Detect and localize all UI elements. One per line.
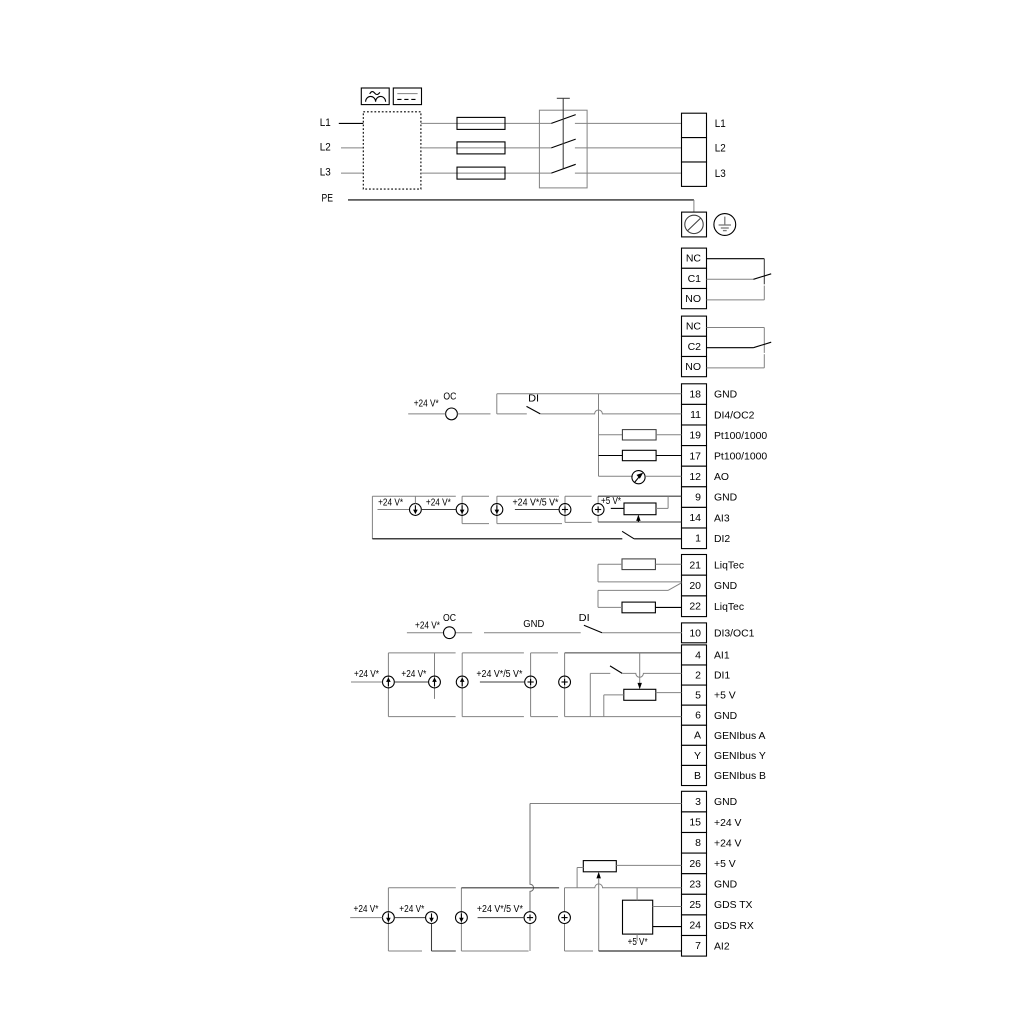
svg-text:L2: L2 <box>715 143 726 155</box>
svg-text:8: 8 <box>695 837 701 849</box>
svg-text:3: 3 <box>695 796 701 808</box>
svg-text:AI1: AI1 <box>714 651 730 662</box>
svg-text:20: 20 <box>689 580 701 592</box>
svg-text:C1: C1 <box>688 273 702 285</box>
svg-text:L3: L3 <box>715 168 726 180</box>
svg-text:GND: GND <box>714 711 737 722</box>
svg-text:+24 V*: +24 V* <box>354 669 379 680</box>
svg-text:GND: GND <box>714 390 737 401</box>
svg-text:+24 V: +24 V <box>714 818 742 829</box>
svg-text:22: 22 <box>689 601 701 613</box>
svg-text:24: 24 <box>689 920 701 932</box>
svg-text:B: B <box>694 770 701 782</box>
svg-text:AI3: AI3 <box>714 513 730 524</box>
svg-text:9: 9 <box>695 492 701 504</box>
svg-text:+5 V*: +5 V* <box>628 937 648 948</box>
svg-text:+24 V: +24 V <box>714 838 742 849</box>
svg-text:6: 6 <box>695 710 701 722</box>
svg-text:+24 V*/5 V*: +24 V*/5 V* <box>477 904 523 915</box>
svg-text:DI: DI <box>579 613 590 624</box>
svg-text:23: 23 <box>689 878 701 890</box>
svg-text:C2: C2 <box>688 341 702 353</box>
svg-text:L1: L1 <box>320 117 331 129</box>
svg-text:AI2: AI2 <box>714 941 730 952</box>
svg-text:11: 11 <box>690 409 701 421</box>
svg-text:LiqTec: LiqTec <box>714 602 744 613</box>
svg-text:14: 14 <box>689 512 701 524</box>
svg-text:GND: GND <box>523 619 544 630</box>
svg-text:2: 2 <box>695 669 701 681</box>
svg-text:+24 V*: +24 V* <box>399 904 424 915</box>
svg-text:PE: PE <box>322 193 334 205</box>
svg-text:+5 V: +5 V <box>714 859 736 870</box>
svg-text:Y: Y <box>694 750 701 762</box>
svg-text:15: 15 <box>689 817 701 829</box>
svg-text:4: 4 <box>695 649 701 661</box>
svg-text:GND: GND <box>714 493 737 504</box>
svg-text:10: 10 <box>689 627 701 639</box>
svg-text:GND: GND <box>714 880 737 891</box>
svg-text:17: 17 <box>689 450 701 462</box>
svg-text:+24 V*: +24 V* <box>354 904 379 915</box>
svg-text:NO: NO <box>685 361 701 373</box>
svg-text:L1: L1 <box>715 118 726 130</box>
svg-text:+24 V*: +24 V* <box>401 669 426 680</box>
svg-text:Pt100/1000: Pt100/1000 <box>714 431 767 442</box>
svg-text:7: 7 <box>695 940 701 952</box>
svg-text:DI3/OC1: DI3/OC1 <box>714 628 755 639</box>
svg-text:AO: AO <box>714 472 729 483</box>
svg-text:+24 V*/5 V*: +24 V*/5 V* <box>476 669 522 680</box>
svg-text:GDS RX: GDS RX <box>714 921 754 932</box>
svg-text:GND: GND <box>714 581 737 592</box>
svg-text:OC: OC <box>443 392 456 403</box>
svg-text:1: 1 <box>695 533 701 545</box>
svg-text:NO: NO <box>685 293 701 305</box>
svg-text:NC: NC <box>686 253 702 265</box>
svg-text:LiqTec: LiqTec <box>714 560 744 571</box>
svg-text:+24 V*: +24 V* <box>378 497 403 508</box>
svg-text:25: 25 <box>689 899 701 911</box>
svg-text:21: 21 <box>689 559 701 571</box>
svg-text:OC: OC <box>443 613 456 624</box>
svg-text:A: A <box>694 730 701 742</box>
svg-text:GND: GND <box>714 797 737 808</box>
svg-text:GDS TX: GDS TX <box>714 900 753 911</box>
svg-text:5: 5 <box>695 690 701 702</box>
svg-text:+24 V*/5 V*: +24 V*/5 V* <box>513 497 559 508</box>
svg-text:L3: L3 <box>320 167 331 179</box>
svg-text:DI4/OC2: DI4/OC2 <box>714 410 755 421</box>
svg-text:+24 V*: +24 V* <box>415 621 440 632</box>
svg-text:GENIbus A: GENIbus A <box>714 731 765 742</box>
svg-text:19: 19 <box>689 430 701 442</box>
svg-text:DI1: DI1 <box>714 671 730 682</box>
svg-text:12: 12 <box>689 471 701 483</box>
svg-text:18: 18 <box>689 389 701 401</box>
svg-text:+24 V*: +24 V* <box>426 497 451 508</box>
svg-text:Pt100/1000: Pt100/1000 <box>714 452 767 463</box>
svg-text:DI: DI <box>528 394 539 405</box>
svg-text:+24 V*: +24 V* <box>414 398 439 409</box>
svg-text:GENIbus B: GENIbus B <box>714 771 766 782</box>
svg-text:+5 V: +5 V <box>714 691 736 702</box>
svg-text:GENIbus Y: GENIbus Y <box>714 751 766 762</box>
svg-text:26: 26 <box>689 858 701 870</box>
svg-text:L2: L2 <box>320 141 331 153</box>
svg-text:+5 V*: +5 V* <box>601 496 621 507</box>
svg-text:DI2: DI2 <box>714 534 730 545</box>
svg-text:NC: NC <box>686 321 702 333</box>
